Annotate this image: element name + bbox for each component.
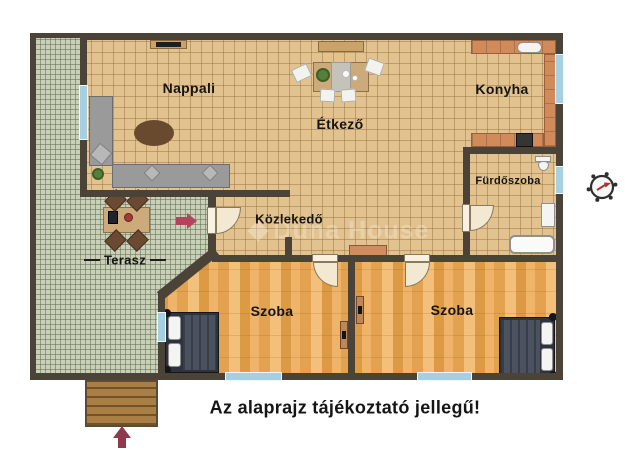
- room-label-szoba-2: Szoba: [431, 302, 474, 318]
- stove-icon: [516, 133, 533, 147]
- table-plate: [352, 75, 358, 81]
- kitchen-counter-top: [471, 40, 556, 54]
- bedroom2-wall-unit-handle: [358, 306, 362, 314]
- bedroom2-door: [404, 254, 430, 262]
- disclaimer-text: Az alaprajz tájékoztató jellegű!: [210, 398, 481, 419]
- terasz-label-line: [84, 259, 100, 261]
- entrance-door: [207, 207, 216, 234]
- washing-machine: [541, 203, 555, 227]
- bed-2-pillow: [541, 348, 553, 371]
- terasz-label-line: [150, 259, 166, 261]
- bathtub: [509, 235, 555, 254]
- floor-plan: Nappali Étkező Konyha Fürdőszoba Közleke…: [0, 0, 640, 463]
- living-wall-bottom: [80, 190, 290, 197]
- plant-icon: [92, 168, 104, 180]
- bedroom1-wall-unit-handle: [342, 331, 346, 339]
- terrace-mug: [124, 213, 133, 222]
- bed-2-blanket: [502, 320, 540, 374]
- dining-chair: [320, 89, 336, 103]
- dining-chair: [341, 88, 357, 102]
- window-bedroom1-bottom: [225, 372, 282, 381]
- wall-bottom: [30, 373, 563, 380]
- bed-2-pillow: [541, 322, 553, 345]
- room-label-szoba-1: Szoba: [251, 303, 294, 319]
- kitchen-counter-bottom: [471, 133, 544, 147]
- window-bathroom-right: [555, 166, 564, 194]
- street-entrance-arrow-icon: [113, 426, 131, 448]
- terrace-tray: [108, 211, 118, 224]
- bed-1-blanket: [183, 315, 216, 370]
- room-label-konyha: Konyha: [475, 81, 528, 97]
- room-label-nappali: Nappali: [163, 80, 216, 96]
- bedroom-divider-wall: [348, 255, 355, 380]
- tv-icon: [156, 42, 181, 47]
- room-label-etkezo: Étkező: [317, 116, 364, 132]
- window-bedroom1-left: [157, 312, 166, 342]
- room-label-terasz: Terasz: [104, 253, 146, 268]
- window-bedroom2-bottom: [417, 372, 472, 381]
- entrance-steps: [85, 380, 158, 427]
- bathroom-wall-left-b: [463, 232, 470, 262]
- table-plant-icon: [316, 68, 330, 82]
- wall-top: [80, 33, 563, 40]
- bed-1-pillow: [168, 343, 181, 367]
- bathroom-wall-left-a: [463, 147, 470, 205]
- table-plate: [342, 70, 350, 78]
- sideboard: [318, 41, 364, 52]
- bathroom-door: [462, 204, 470, 232]
- bedroom1-door: [312, 254, 338, 262]
- bed-1-pillow: [168, 316, 181, 340]
- room-label-kozlekedo: Közlekedő: [255, 212, 323, 227]
- terrace-wall-left: [30, 33, 36, 380]
- kitchen-sink: [517, 42, 542, 53]
- kitchen-bath-divider: [463, 147, 556, 154]
- room-label-furdoszoba: Fürdőszoba: [475, 175, 540, 187]
- bedroom-wall-top-a: [212, 255, 312, 262]
- window-kitchen-right: [555, 54, 564, 104]
- terrace-wall-top: [30, 33, 86, 38]
- compass-icon: [587, 172, 618, 202]
- rug: [134, 120, 174, 146]
- window-living-left: [79, 85, 88, 140]
- bedroom-wall-top-c: [430, 255, 556, 262]
